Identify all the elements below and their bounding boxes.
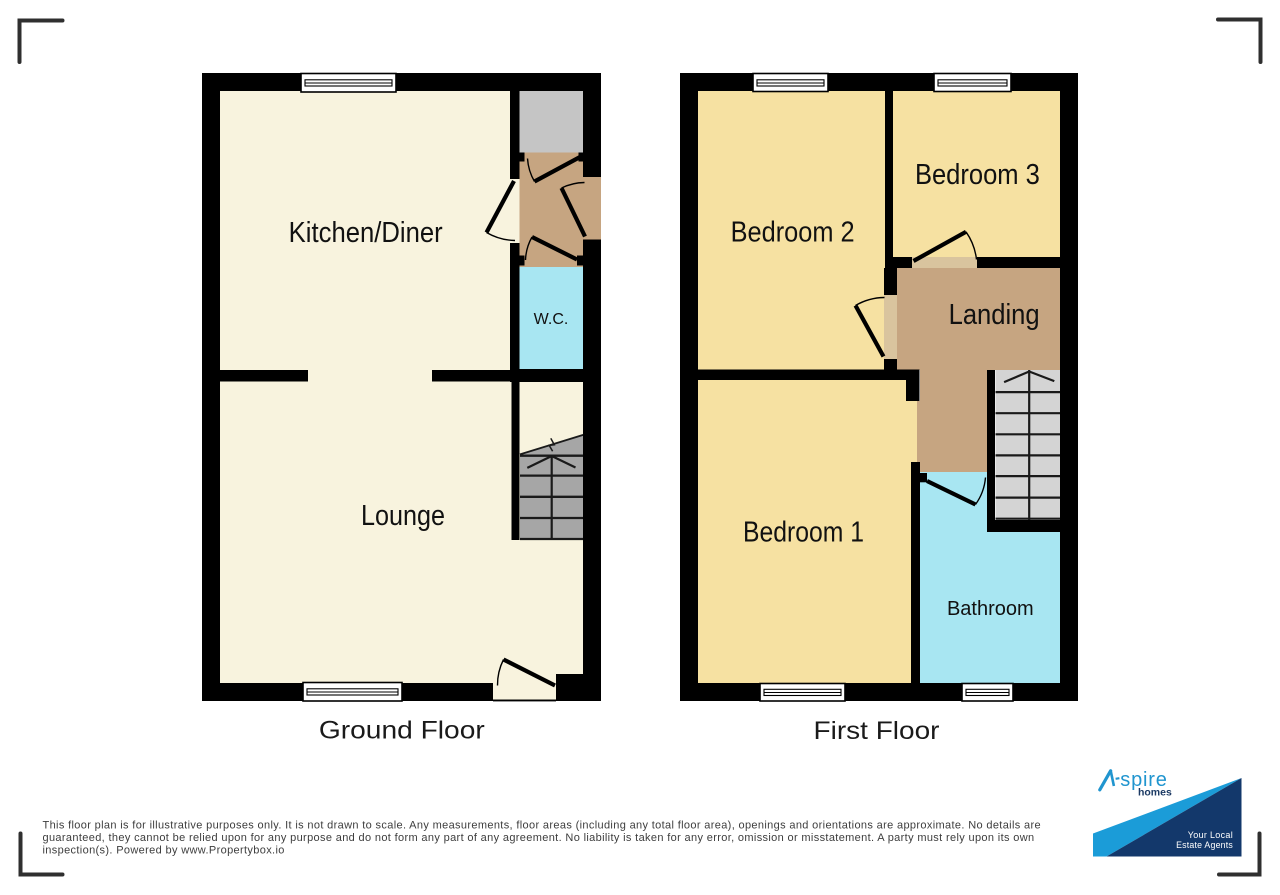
svg-text:Bathroom: Bathroom: [947, 598, 1034, 620]
svg-text:W.C.: W.C.: [534, 311, 569, 328]
svg-text:Ground Floor: Ground Floor: [319, 716, 485, 744]
svg-text:Kitchen/Diner: Kitchen/Diner: [289, 216, 443, 249]
svg-text:Lounge: Lounge: [361, 498, 445, 531]
svg-text:First Floor: First Floor: [814, 717, 940, 745]
svg-text:homes: homes: [1138, 787, 1172, 799]
svg-text:Bedroom 2: Bedroom 2: [731, 215, 855, 248]
svg-text:Landing: Landing: [949, 297, 1040, 330]
svg-text:Estate Agents: Estate Agents: [1176, 840, 1233, 850]
svg-text:Bedroom 3: Bedroom 3: [915, 157, 1040, 190]
svg-text:inspection(s). Powered by www.: inspection(s). Powered by www.Propertybo…: [43, 844, 285, 856]
svg-text:guaranteed, they cannot be rel: guaranteed, they cannot be relied upon f…: [43, 832, 1035, 844]
svg-text:Your Local: Your Local: [1188, 830, 1233, 840]
svg-text:This floor plan is for illustr: This floor plan is for illustrative purp…: [43, 819, 1041, 831]
svg-text:Bedroom 1: Bedroom 1: [743, 515, 864, 547]
